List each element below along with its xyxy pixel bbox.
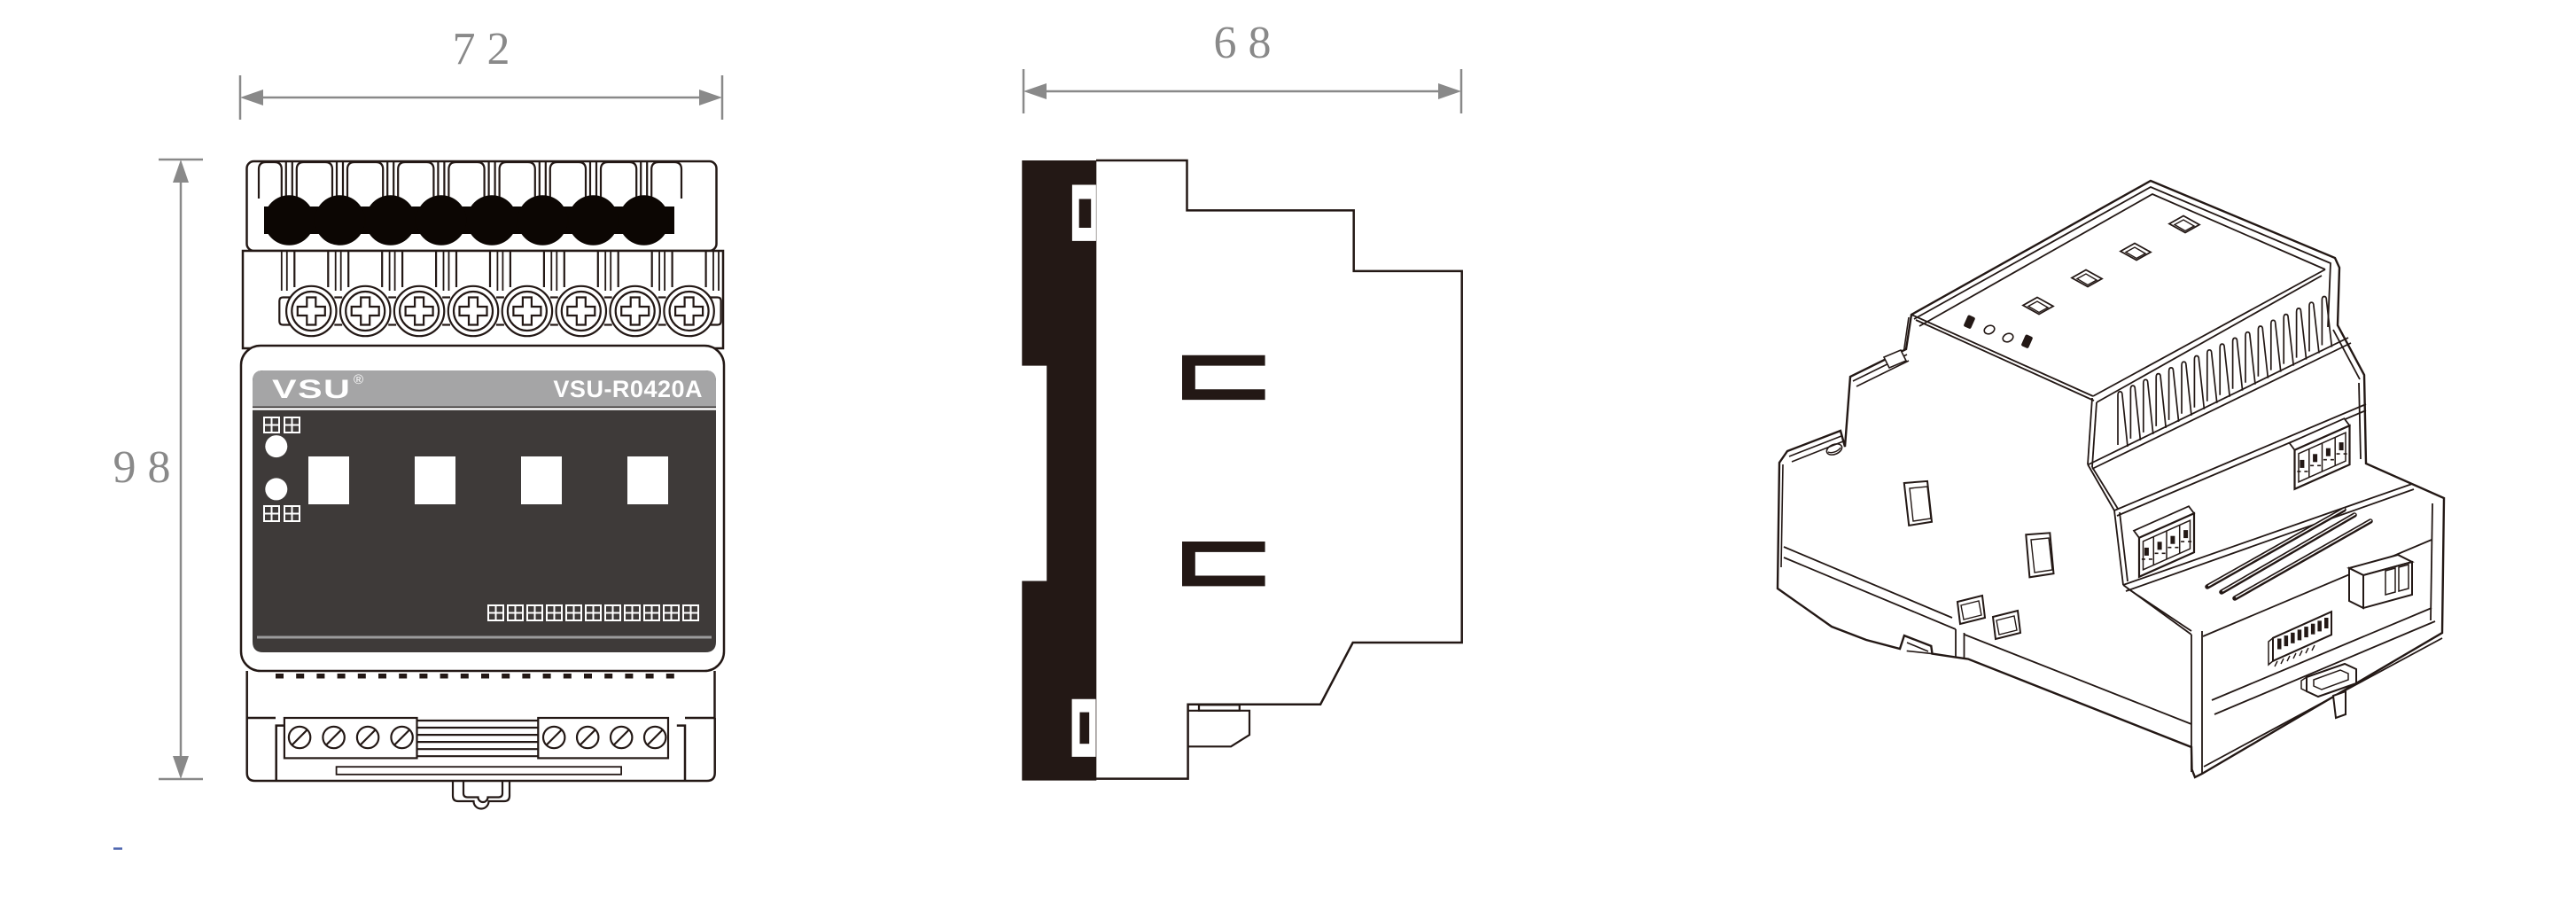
- svg-text:VSU: VSU: [272, 374, 351, 404]
- svg-text:7 2: 7 2: [453, 24, 510, 74]
- svg-text:®: ®: [354, 372, 363, 387]
- svg-text:6 8: 6 8: [1214, 18, 1272, 68]
- svg-text:9 8: 9 8: [113, 442, 171, 493]
- svg-text:VSU-R0420A: VSU-R0420A: [553, 376, 703, 402]
